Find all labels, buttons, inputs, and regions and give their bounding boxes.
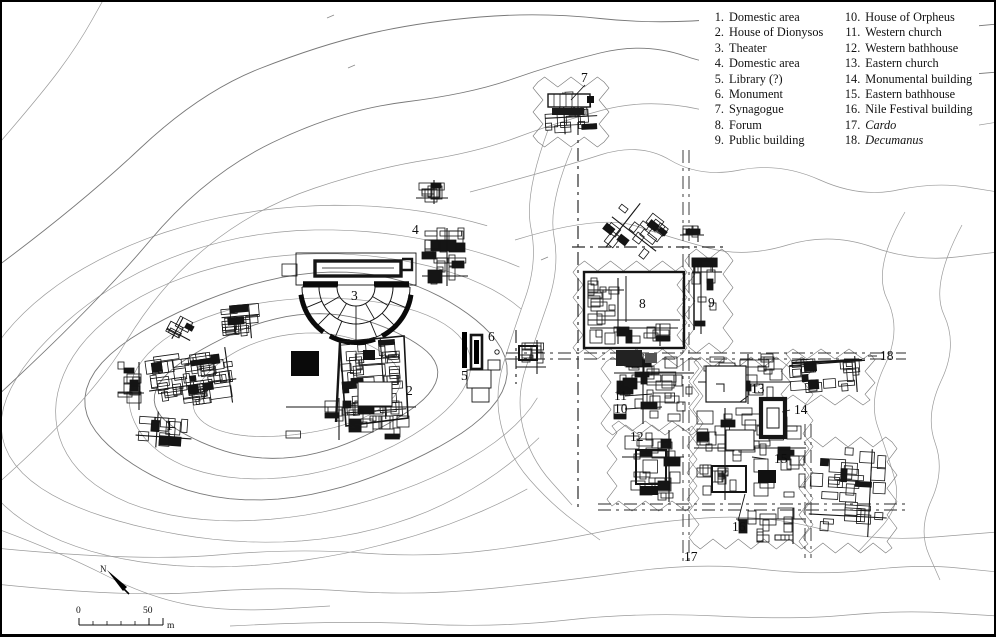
legend-item: 14.Monumental building: [839, 72, 972, 87]
legend-item: 13.Eastern church: [839, 56, 972, 71]
cluster-south-strip: [736, 508, 806, 544]
cardo: [683, 150, 689, 562]
legend-item: 9.Public building: [703, 133, 823, 148]
map-number-label-10: 10: [614, 401, 628, 416]
cluster-se-cluster: [808, 446, 890, 538]
legend-item: 10.House of Orpheus: [839, 10, 972, 25]
map-number-label-17: 17: [684, 549, 698, 564]
legend-item: 18.Decumanus: [839, 133, 972, 148]
decumanus: [506, 353, 906, 359]
map-number-label-8: 8: [639, 296, 646, 311]
contour-elevation-mark: [348, 65, 355, 68]
black-square-structure: [291, 351, 319, 376]
cluster-domestic-area-1-ne: [221, 303, 262, 340]
legend-item: 1.Domestic area: [703, 10, 823, 25]
cluster-domestic-area-1-sq: [164, 313, 198, 346]
contour-elevation-mark: [541, 257, 548, 260]
legend-item: 16.Nile Festival building: [839, 102, 972, 117]
map-number-label-9: 9: [708, 295, 715, 310]
map-number-label-1: 1: [166, 418, 173, 433]
legend-item: 11.Western church: [839, 25, 972, 40]
legend: 1.Domestic area2.House of Dionysos3.Thea…: [699, 6, 979, 155]
cluster-area-4-north: [416, 180, 448, 204]
cluster-domestic-area-4: [422, 228, 468, 286]
map-number-label-5: 5: [461, 368, 468, 383]
legend-item: 6.Monument: [703, 87, 823, 102]
map-number-label-15: 15: [774, 451, 788, 466]
north-arrow-label: N: [100, 564, 107, 574]
cluster-domestic-area-1-s: [135, 410, 193, 450]
map-number-label-13: 13: [751, 381, 765, 396]
nile-festival-heavy: [712, 430, 776, 492]
map-number-label-2: 2: [406, 383, 413, 398]
map-number-label-18: 18: [880, 348, 894, 363]
site-plan-figure: 123456789101112131415161718 N 0 50 m 1.D…: [0, 0, 996, 637]
scale-start-label: 0: [76, 606, 81, 616]
legend-column-2: 10.House of Orpheus11.Western church12.W…: [839, 10, 972, 149]
scale-unit-label: m: [167, 621, 175, 631]
legend-item: 5.Library (?): [703, 72, 823, 87]
legend-item: 7.Synagogue: [703, 102, 823, 117]
map-number-label-16: 16: [732, 519, 746, 534]
legend-item: 4.Domestic area: [703, 56, 823, 71]
legend-item: 8.Forum: [703, 118, 823, 133]
street-lines: [506, 96, 908, 562]
map-number-label-11: 11: [614, 388, 627, 403]
map-number-label-14: 14: [794, 402, 808, 417]
map-number-label-7: 7: [581, 70, 588, 85]
map-number-label-4: 4: [412, 222, 419, 237]
legend-item: 3.Theater: [703, 41, 823, 56]
map-number-label-3: 3: [351, 288, 358, 303]
cluster-domestic-area-1-w: [118, 362, 144, 410]
cluster-nile-festival-area: [694, 408, 806, 500]
contour-elevation-mark: [327, 15, 334, 18]
cluster-public-building-9: [692, 258, 722, 334]
cluster-domestic-area-1-main: [145, 346, 240, 414]
map-number-label-12: 12: [630, 429, 644, 444]
north-arrow: N: [100, 564, 129, 594]
legend-item: 2.House of Dionysos: [703, 25, 823, 40]
legend-item: 17.Cardo: [839, 118, 972, 133]
scale-bar: 0 50 m: [76, 606, 175, 631]
theater-stage-building: [282, 253, 416, 285]
scale-end-label: 50: [143, 606, 153, 616]
cluster-forum-south-range: [590, 324, 678, 346]
excavation-border-forum-area: [573, 261, 687, 359]
eastern-church-hall: [706, 366, 746, 402]
monumental-building: [761, 399, 785, 437]
legend-item: 15.Eastern bathhouse: [839, 87, 972, 102]
cluster-ne-bits-9: [680, 226, 704, 242]
map-number-label-6: 6: [488, 329, 495, 344]
legend-item: 12.Western bathhouse: [839, 41, 972, 56]
legend-column-1: 1.Domestic area2.House of Dionysos3.Thea…: [703, 10, 823, 149]
